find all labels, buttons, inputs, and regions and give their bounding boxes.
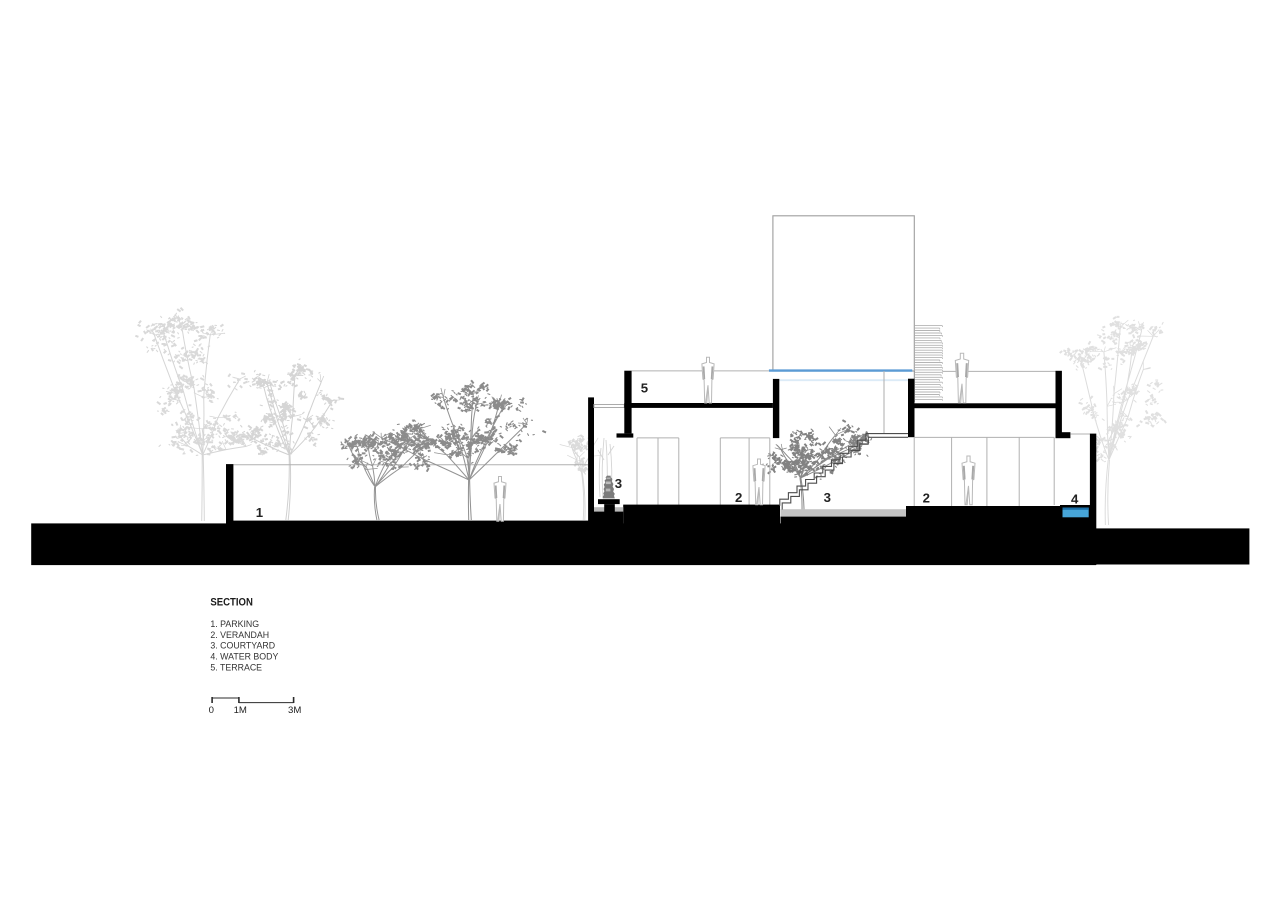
svg-text:2: 2 [923,490,930,505]
svg-text:1. PARKING: 1. PARKING [210,619,259,629]
svg-text:5. TERRACE: 5. TERRACE [210,662,262,672]
svg-text:0: 0 [209,705,214,716]
svg-text:2. VERANDAH: 2. VERANDAH [210,630,269,640]
svg-text:3M: 3M [288,705,301,716]
svg-text:1M: 1M [234,705,247,716]
svg-text:3. COURTYARD: 3. COURTYARD [210,641,275,651]
svg-text:5: 5 [641,381,648,396]
svg-text:2: 2 [735,490,742,505]
svg-text:1: 1 [256,505,263,520]
svg-text:3: 3 [615,476,622,491]
svg-text:3: 3 [824,490,831,505]
svg-text:4. WATER BODY: 4. WATER BODY [210,651,278,661]
svg-text:4: 4 [1071,492,1079,507]
svg-text:SECTION: SECTION [210,596,253,608]
